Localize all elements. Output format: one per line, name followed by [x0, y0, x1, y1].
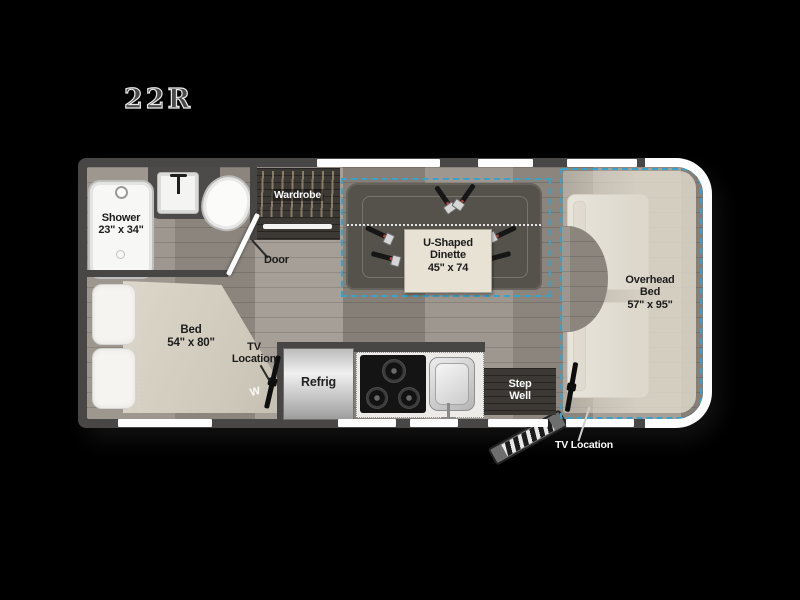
- shower-label: Shower 23" x 34": [90, 212, 152, 237]
- window-icon: [338, 419, 396, 427]
- model-number: 22R: [124, 84, 193, 115]
- wardrobe: Wardrobe: [255, 168, 340, 240]
- shower-head-icon: [115, 186, 128, 199]
- dinette-table: U-Shaped Dinette 45" x 74: [404, 229, 492, 293]
- burner-icon: [398, 387, 420, 409]
- cooktop-icon: [360, 355, 426, 413]
- kitchen-sink-icon: [429, 357, 475, 411]
- floorplan: Shower 23" x 34" Door Wardrobe: [78, 158, 712, 428]
- window-icon: [566, 419, 634, 427]
- wardrobe-label: Wardrobe: [255, 190, 340, 202]
- pillow-icon: [92, 348, 136, 409]
- step-well: Step Well: [484, 368, 556, 415]
- burner-icon: [382, 359, 406, 383]
- door-label: Door: [264, 254, 306, 266]
- bathroom-sink-icon: [157, 172, 199, 214]
- window-icon: [478, 159, 533, 167]
- burner-icon: [366, 387, 388, 409]
- window-icon: [118, 419, 212, 427]
- kitchen-counter: [356, 352, 484, 418]
- bathroom-wall: [87, 270, 228, 277]
- shower-pan-icon: Shower 23" x 34": [88, 180, 154, 279]
- dinette-slideout: U-Shaped Dinette 45" x 74: [341, 178, 551, 297]
- refrigerator: Refrig: [283, 348, 354, 420]
- tv-location-label-bedroom: TV Location: [226, 341, 282, 366]
- faucet-icon: [177, 175, 180, 194]
- window-icon: [567, 159, 637, 167]
- refrigerator-label: Refrig: [284, 375, 353, 389]
- sink-basin: [435, 363, 469, 405]
- faucet-handle-icon: [170, 174, 187, 177]
- tv-location-label-cab: TV Location: [550, 440, 618, 452]
- window-icon: [410, 419, 458, 427]
- bed-label: Bed 54" x 80": [146, 324, 236, 350]
- windshield-icon: [645, 158, 712, 428]
- shower-drain-icon: [116, 250, 125, 259]
- closet-rod-icon: [263, 224, 332, 229]
- pillows: [90, 282, 140, 411]
- step-well-label: Step Well: [484, 378, 556, 403]
- pillow-icon: [92, 284, 136, 345]
- window-icon: [317, 159, 440, 167]
- dinette-label: U-Shaped Dinette 45" x 74: [405, 237, 491, 274]
- window-icon: [488, 419, 548, 427]
- floorplan-image: 22R Shower 23" x 34": [0, 0, 800, 600]
